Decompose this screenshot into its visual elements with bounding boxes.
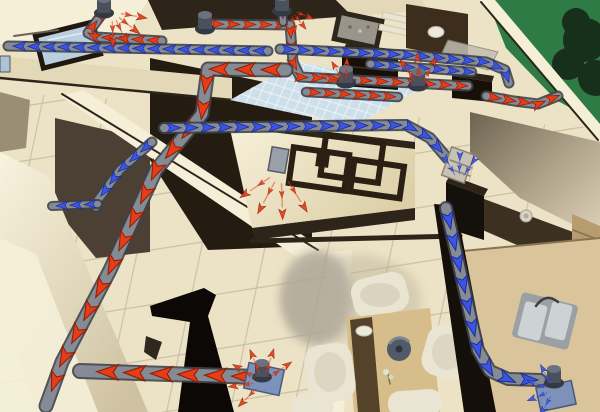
bathtub-pebble [358, 29, 362, 33]
garden-bush [562, 8, 590, 36]
return-duct-left-stub [52, 200, 98, 210]
dining-chair-seat [360, 283, 400, 307]
smoke-detector-center [524, 214, 529, 219]
ceiling-diffuser-bedroom [94, 0, 114, 19]
wall-supply-diffuser [268, 147, 289, 174]
flower [389, 375, 394, 380]
hvac-airflow-visualization [0, 0, 600, 412]
wall-shelf-box [315, 153, 330, 168]
vanity-sink-bowl [428, 27, 444, 38]
duct-riser-fitting [272, 0, 292, 17]
bathtub-pebble [348, 25, 352, 29]
blurred-chair [280, 250, 352, 346]
bathtub-pebble [366, 25, 369, 28]
dining-chair-seat [314, 352, 346, 392]
scene-canvas [0, 0, 600, 412]
flower [383, 369, 389, 375]
wall-gray-left [0, 92, 30, 152]
mini-artwork-left-edge [0, 56, 10, 72]
table-plate [356, 326, 372, 336]
pendant-lamp-hub [396, 346, 403, 353]
